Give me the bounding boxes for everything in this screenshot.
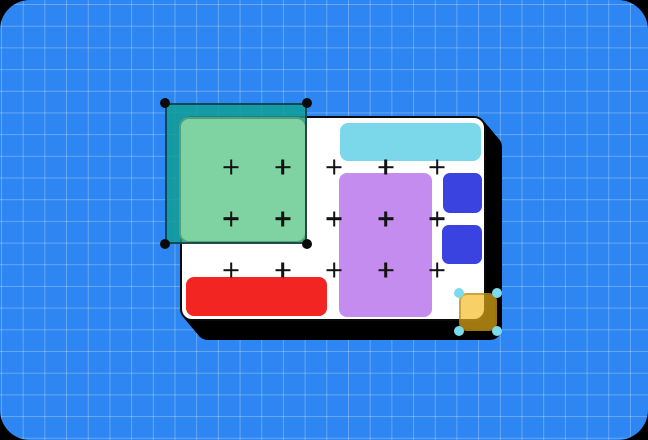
- bottom-right-yellow-handle-dot[interactable]: [492, 326, 502, 336]
- plus-marker-icon: [275, 263, 290, 278]
- plus-marker-icon: [430, 211, 445, 226]
- plus-marker-icon: [224, 211, 239, 226]
- top-left-yellow-handle-dot[interactable]: [454, 288, 464, 298]
- bottom-right-marquee-handle-dot[interactable]: [302, 239, 312, 249]
- top-right-yellow-handle-dot[interactable]: [492, 288, 502, 298]
- plus-marker-icon: [430, 263, 445, 278]
- plus-marker-icon: [275, 211, 290, 226]
- plus-marker-icon: [378, 263, 393, 278]
- plus-marker-icon: [327, 160, 342, 175]
- red-bar-shape[interactable]: [186, 277, 327, 316]
- plus-marker-icon: [224, 263, 239, 278]
- plus-marker-icon: [378, 160, 393, 175]
- plus-marker-icon: [327, 211, 342, 226]
- plus-marker-icon: [224, 160, 239, 175]
- plus-marker-icon: [378, 211, 393, 226]
- blue-square-top-shape[interactable]: [443, 173, 482, 213]
- cyan-bar-shape[interactable]: [340, 123, 481, 161]
- yellow-square-shape[interactable]: [459, 293, 497, 331]
- illustration-stage: [0, 0, 648, 440]
- plus-marker-icon: [275, 160, 290, 175]
- plus-marker-icon: [430, 160, 445, 175]
- top-left-marquee-handle-dot[interactable]: [160, 98, 170, 108]
- blue-square-bottom-shape[interactable]: [442, 225, 482, 264]
- purple-rect-shape[interactable]: [339, 173, 432, 317]
- top-right-marquee-handle-dot[interactable]: [302, 98, 312, 108]
- bottom-left-marquee-handle-dot[interactable]: [160, 239, 170, 249]
- plus-marker-icon: [327, 263, 342, 278]
- bottom-left-yellow-handle-dot[interactable]: [454, 326, 464, 336]
